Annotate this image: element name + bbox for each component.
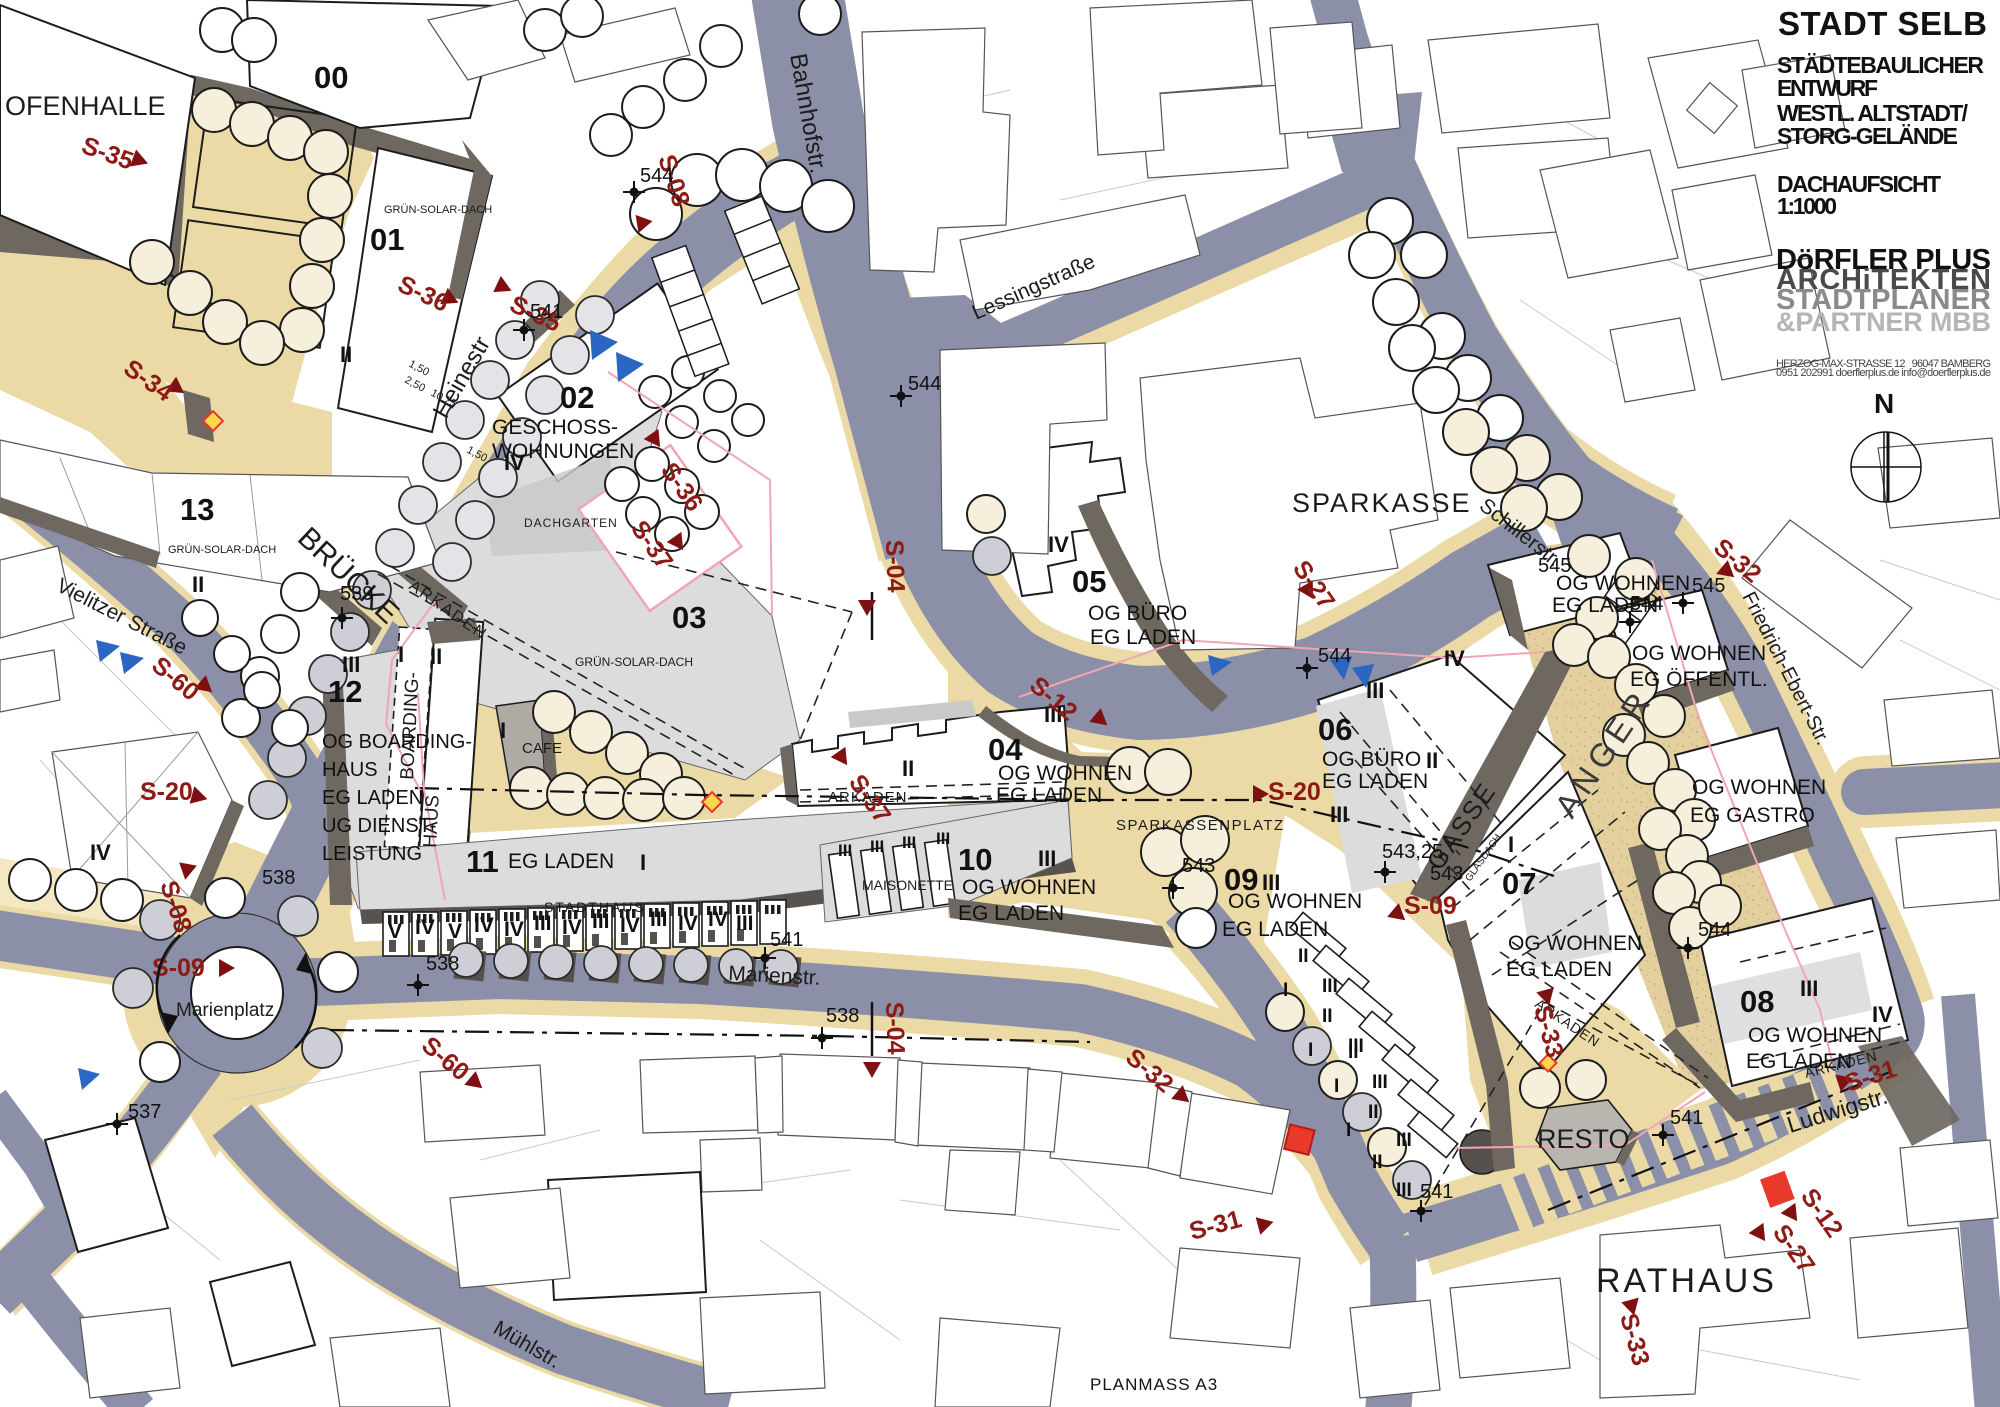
svg-text:02: 02: [560, 380, 594, 415]
svg-text:II: II: [1368, 1102, 1379, 1123]
svg-text:II: II: [340, 342, 352, 367]
svg-text:LEISTUNG: LEISTUNG: [322, 843, 422, 865]
svg-text:IV: IV: [620, 914, 640, 937]
svg-text:OG BÜRO: OG BÜRO: [1088, 602, 1187, 625]
svg-text:S-09: S-09: [1404, 892, 1457, 920]
svg-text:III: III: [1372, 1072, 1388, 1093]
svg-text:GESCHOSS-: GESCHOSS-: [492, 416, 618, 439]
svg-text:OG WOHNEN: OG WOHNEN: [962, 876, 1096, 899]
svg-text:1:1000: 1:1000: [1777, 193, 1837, 219]
svg-text:EG LADEN: EG LADEN: [958, 902, 1064, 925]
svg-text:543: 543: [1430, 863, 1463, 885]
svg-text:III: III: [1396, 1130, 1412, 1151]
svg-text:539: 539: [340, 583, 373, 605]
svg-text:III: III: [736, 912, 754, 935]
svg-text:05: 05: [1072, 564, 1106, 599]
svg-text:IV: IV: [708, 908, 728, 931]
svg-text:SPARKASSE: SPARKASSE: [1292, 488, 1472, 518]
svg-text:I: I: [398, 642, 404, 667]
svg-text:III: III: [650, 908, 668, 931]
svg-text:I: I: [1346, 1120, 1351, 1141]
svg-text:III: III: [936, 829, 950, 848]
svg-text:544: 544: [1698, 919, 1731, 941]
svg-text:III: III: [902, 833, 916, 852]
svg-text:II: II: [1322, 1006, 1333, 1027]
svg-text:538: 538: [262, 867, 295, 889]
svg-text:01: 01: [370, 222, 404, 257]
svg-text:III: III: [1396, 1180, 1412, 1201]
svg-text:IV: IV: [504, 918, 524, 941]
svg-text:544: 544: [1318, 645, 1351, 667]
svg-text:III: III: [838, 841, 852, 860]
svg-text:II: II: [1298, 946, 1309, 967]
svg-text:RESTO: RESTO: [1537, 1124, 1630, 1154]
svg-text:Marienplatz: Marienplatz: [176, 1000, 274, 1021]
svg-text:543: 543: [1182, 855, 1215, 877]
svg-text:RATHAUS: RATHAUS: [1596, 1262, 1777, 1300]
svg-text:UG DIENST-: UG DIENST-: [322, 815, 436, 837]
svg-text:N: N: [1874, 388, 1894, 419]
svg-text:STORG-GELÄNDE: STORG-GELÄNDE: [1777, 123, 1958, 149]
svg-text:545: 545: [1538, 555, 1571, 577]
svg-text:544: 544: [908, 373, 941, 395]
svg-text:I: I: [640, 850, 646, 875]
svg-text:543,25: 543,25: [1382, 841, 1443, 863]
svg-text:00: 00: [314, 60, 348, 95]
svg-text:OG WOHNEN: OG WOHNEN: [1632, 642, 1766, 665]
svg-text:MAISONETTE: MAISONETTE: [862, 877, 953, 893]
svg-text:OG WOHNEN: OG WOHNEN: [1228, 890, 1362, 913]
svg-text:541: 541: [1420, 1181, 1453, 1203]
svg-text:06: 06: [1318, 712, 1352, 747]
svg-text:IV: IV: [504, 450, 525, 475]
svg-text:SPARKASSENPLATZ: SPARKASSENPLATZ: [1116, 817, 1285, 834]
svg-text:PLANMASS A3: PLANMASS A3: [1090, 1375, 1218, 1394]
svg-text:I: I: [1283, 980, 1288, 1001]
svg-text:IV: IV: [1048, 532, 1069, 557]
svg-text:EG GASTRO: EG GASTRO: [1690, 804, 1815, 827]
svg-text:OG BOARDING-: OG BOARDING-: [322, 731, 472, 753]
svg-text:III: III: [1330, 802, 1348, 827]
svg-text:541: 541: [530, 301, 563, 323]
svg-text:DACHGARTEN: DACHGARTEN: [524, 516, 618, 530]
svg-text:EG ÖFFENTL.: EG ÖFFENTL.: [1630, 668, 1768, 691]
svg-text:HAUS: HAUS: [322, 759, 378, 781]
svg-text:II: II: [902, 756, 914, 781]
svg-text:537: 537: [128, 1101, 161, 1123]
svg-text:I: I: [1334, 1076, 1339, 1097]
svg-text:538: 538: [426, 953, 459, 975]
svg-text:EG LADEN: EG LADEN: [322, 787, 423, 809]
svg-text:II: II: [430, 644, 442, 669]
svg-text:CAFE: CAFE: [522, 740, 562, 757]
svg-text:OG WOHNEN: OG WOHNEN: [1692, 776, 1826, 799]
svg-text:III: III: [1366, 678, 1384, 703]
svg-text:538: 538: [826, 1005, 859, 1027]
svg-text:III: III: [1262, 870, 1280, 895]
svg-text:OFENHALLE: OFENHALLE: [5, 91, 166, 121]
svg-text:0951 202991 doerflerplus.de: 0951 202991 doerflerplus.de info@doerfle…: [1776, 367, 1991, 379]
svg-text:Marienstr.: Marienstr.: [728, 962, 821, 990]
svg-text:S-20: S-20: [1268, 778, 1321, 806]
svg-text:III: III: [1800, 976, 1818, 1001]
svg-text:EG LADEN: EG LADEN: [996, 784, 1102, 807]
svg-text:III: III: [870, 837, 884, 856]
svg-text:08: 08: [1740, 984, 1774, 1019]
svg-text:V: V: [448, 920, 462, 943]
svg-text:541: 541: [1670, 1107, 1703, 1129]
svg-text:03: 03: [672, 600, 706, 635]
svg-text:IV: IV: [474, 914, 494, 937]
svg-text:I: I: [1308, 1040, 1313, 1061]
svg-text:GRÜN-SOLAR-DACH: GRÜN-SOLAR-DACH: [384, 204, 492, 216]
svg-text:OG WOHNEN: OG WOHNEN: [1508, 932, 1642, 955]
svg-text:III: III: [534, 912, 552, 935]
svg-text:OG WOHNEN: OG WOHNEN: [1556, 572, 1690, 595]
svg-text:EG LADEN: EG LADEN: [1322, 770, 1428, 793]
svg-text:ENTWURF: ENTWURF: [1777, 75, 1878, 101]
svg-text:10: 10: [958, 842, 992, 877]
svg-text:II: II: [1426, 748, 1438, 773]
svg-text:III: III: [1038, 846, 1056, 871]
svg-text:II: II: [192, 572, 204, 597]
svg-text:S-20: S-20: [140, 778, 193, 806]
svg-text:OG WOHNEN: OG WOHNEN: [998, 762, 1132, 785]
svg-text:OG BÜRO: OG BÜRO: [1322, 748, 1421, 771]
svg-text:I: I: [1508, 832, 1514, 857]
svg-text:&PARTNER MBB: &PARTNER MBB: [1776, 307, 1991, 337]
svg-text:13: 13: [180, 492, 214, 527]
svg-text:IV: IV: [415, 916, 435, 939]
svg-text:07: 07: [1502, 866, 1536, 901]
svg-text:I: I: [500, 718, 506, 743]
svg-text:EG LADEN: EG LADEN: [508, 850, 614, 873]
svg-text:IV: IV: [90, 840, 111, 865]
svg-text:II: II: [1372, 1152, 1383, 1173]
svg-text:EG LADEN: EG LADEN: [1506, 958, 1612, 981]
svg-text:III: III: [1322, 976, 1338, 997]
svg-text:544: 544: [1630, 593, 1663, 615]
svg-text:S-04: S-04: [880, 1001, 910, 1055]
svg-text:III: III: [342, 652, 360, 677]
svg-text:IV: IV: [1872, 1002, 1893, 1027]
svg-text:GRÜN-SOLAR-DACH: GRÜN-SOLAR-DACH: [168, 544, 276, 556]
svg-text:V: V: [388, 920, 402, 943]
svg-text:OG WOHNEN: OG WOHNEN: [1748, 1024, 1882, 1047]
svg-text:EG LADEN: EG LADEN: [1746, 1050, 1852, 1073]
svg-text:II: II: [1348, 1042, 1359, 1063]
svg-text:11: 11: [466, 844, 499, 879]
svg-text:IV: IV: [1444, 646, 1465, 671]
svg-text:GRÜN-SOLAR-DACH: GRÜN-SOLAR-DACH: [575, 655, 693, 669]
svg-text:IV: IV: [562, 916, 582, 939]
svg-text:EG LADEN: EG LADEN: [1090, 626, 1196, 649]
svg-text:545: 545: [1692, 575, 1725, 597]
svg-text:III: III: [592, 910, 610, 933]
svg-text:12: 12: [328, 674, 362, 709]
svg-text:STADT SELB: STADT SELB: [1778, 5, 1987, 42]
svg-text:S-04: S-04: [880, 539, 910, 593]
svg-text:IV: IV: [678, 912, 698, 935]
svg-text:544: 544: [640, 165, 673, 187]
svg-text:541: 541: [770, 929, 803, 951]
svg-text:EG LADEN: EG LADEN: [1222, 918, 1328, 941]
